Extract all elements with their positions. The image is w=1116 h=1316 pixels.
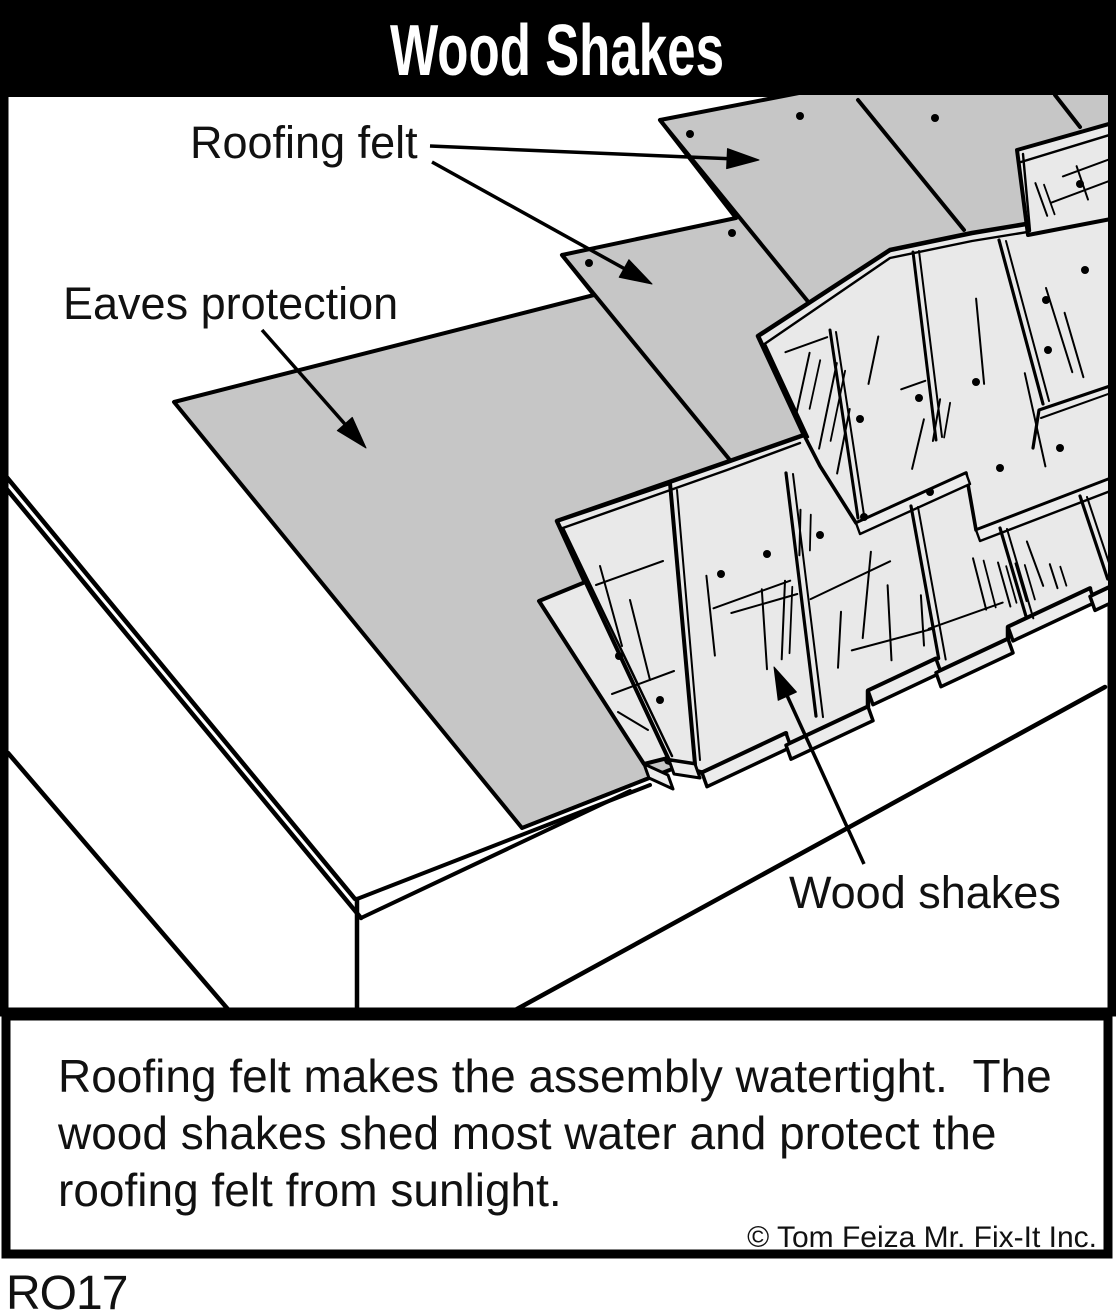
svg-text:Wood Shakes: Wood Shakes (390, 11, 724, 91)
svg-text:Wood shakes: Wood shakes (789, 867, 1061, 918)
svg-text:Roofing felt: Roofing felt (190, 117, 418, 168)
svg-text:wood shakes shed most water an: wood shakes shed most water and protect … (57, 1107, 996, 1159)
svg-text:roofing felt from sunlight.: roofing felt from sunlight. (58, 1164, 562, 1216)
svg-text:Roofing felt makes the assembl: Roofing felt makes the assembly watertig… (58, 1050, 1052, 1102)
svg-text:Eaves protection: Eaves protection (63, 278, 398, 329)
svg-text:© Tom Feiza Mr. Fix-It Inc.: © Tom Feiza Mr. Fix-It Inc. (747, 1221, 1097, 1254)
svg-text:RO17: RO17 (6, 1267, 127, 1316)
